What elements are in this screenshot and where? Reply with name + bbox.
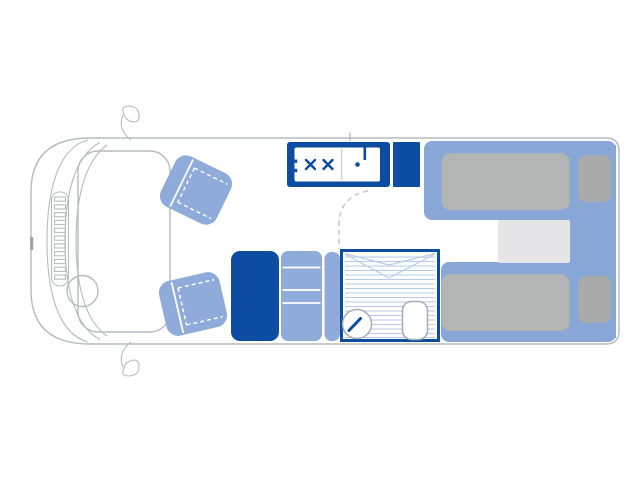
hob-edge-mark-1 [295, 160, 298, 163]
bedside-step [498, 220, 570, 263]
swivel-seat-driver [156, 270, 229, 339]
windshield-cab-outline [78, 151, 170, 332]
hood-edge-line [47, 140, 88, 342]
tall-cabinet-fridge [393, 142, 420, 187]
mattress-bottom [442, 274, 570, 331]
hob-burner-center-right [326, 163, 330, 167]
sink-drain-icon [355, 162, 360, 167]
seat-body [156, 270, 229, 339]
pillow-top [578, 155, 611, 202]
kitchen-worktop [295, 148, 381, 182]
toilet [403, 302, 428, 340]
bathroom [342, 251, 439, 341]
sink-tap-icon [364, 147, 367, 161]
hob-edge-mark-2 [295, 169, 298, 172]
door-swing-arc [339, 191, 368, 249]
twin-bed-area [424, 141, 616, 342]
hob-burner-center-left [309, 163, 313, 167]
floorplan-canvas [0, 0, 640, 480]
mattress-top [442, 153, 570, 210]
steering-wheel [67, 276, 98, 307]
cowl-line-outer [65, 143, 100, 340]
kitchen-unit [287, 142, 420, 187]
bumper-marker [30, 237, 33, 250]
wardrobe [231, 251, 279, 341]
pillow-bottom [578, 276, 611, 323]
mirror-top-icon [121, 106, 139, 140]
dashboard-grille-bars [55, 197, 66, 279]
partition-unit [325, 252, 341, 341]
galley-lower-units [231, 251, 340, 341]
floorplan-svg [0, 0, 640, 480]
mirror-bottom-icon [121, 342, 139, 376]
cowl-line-inner [76, 145, 107, 336]
kitchen-lower-cabinet [281, 251, 322, 341]
